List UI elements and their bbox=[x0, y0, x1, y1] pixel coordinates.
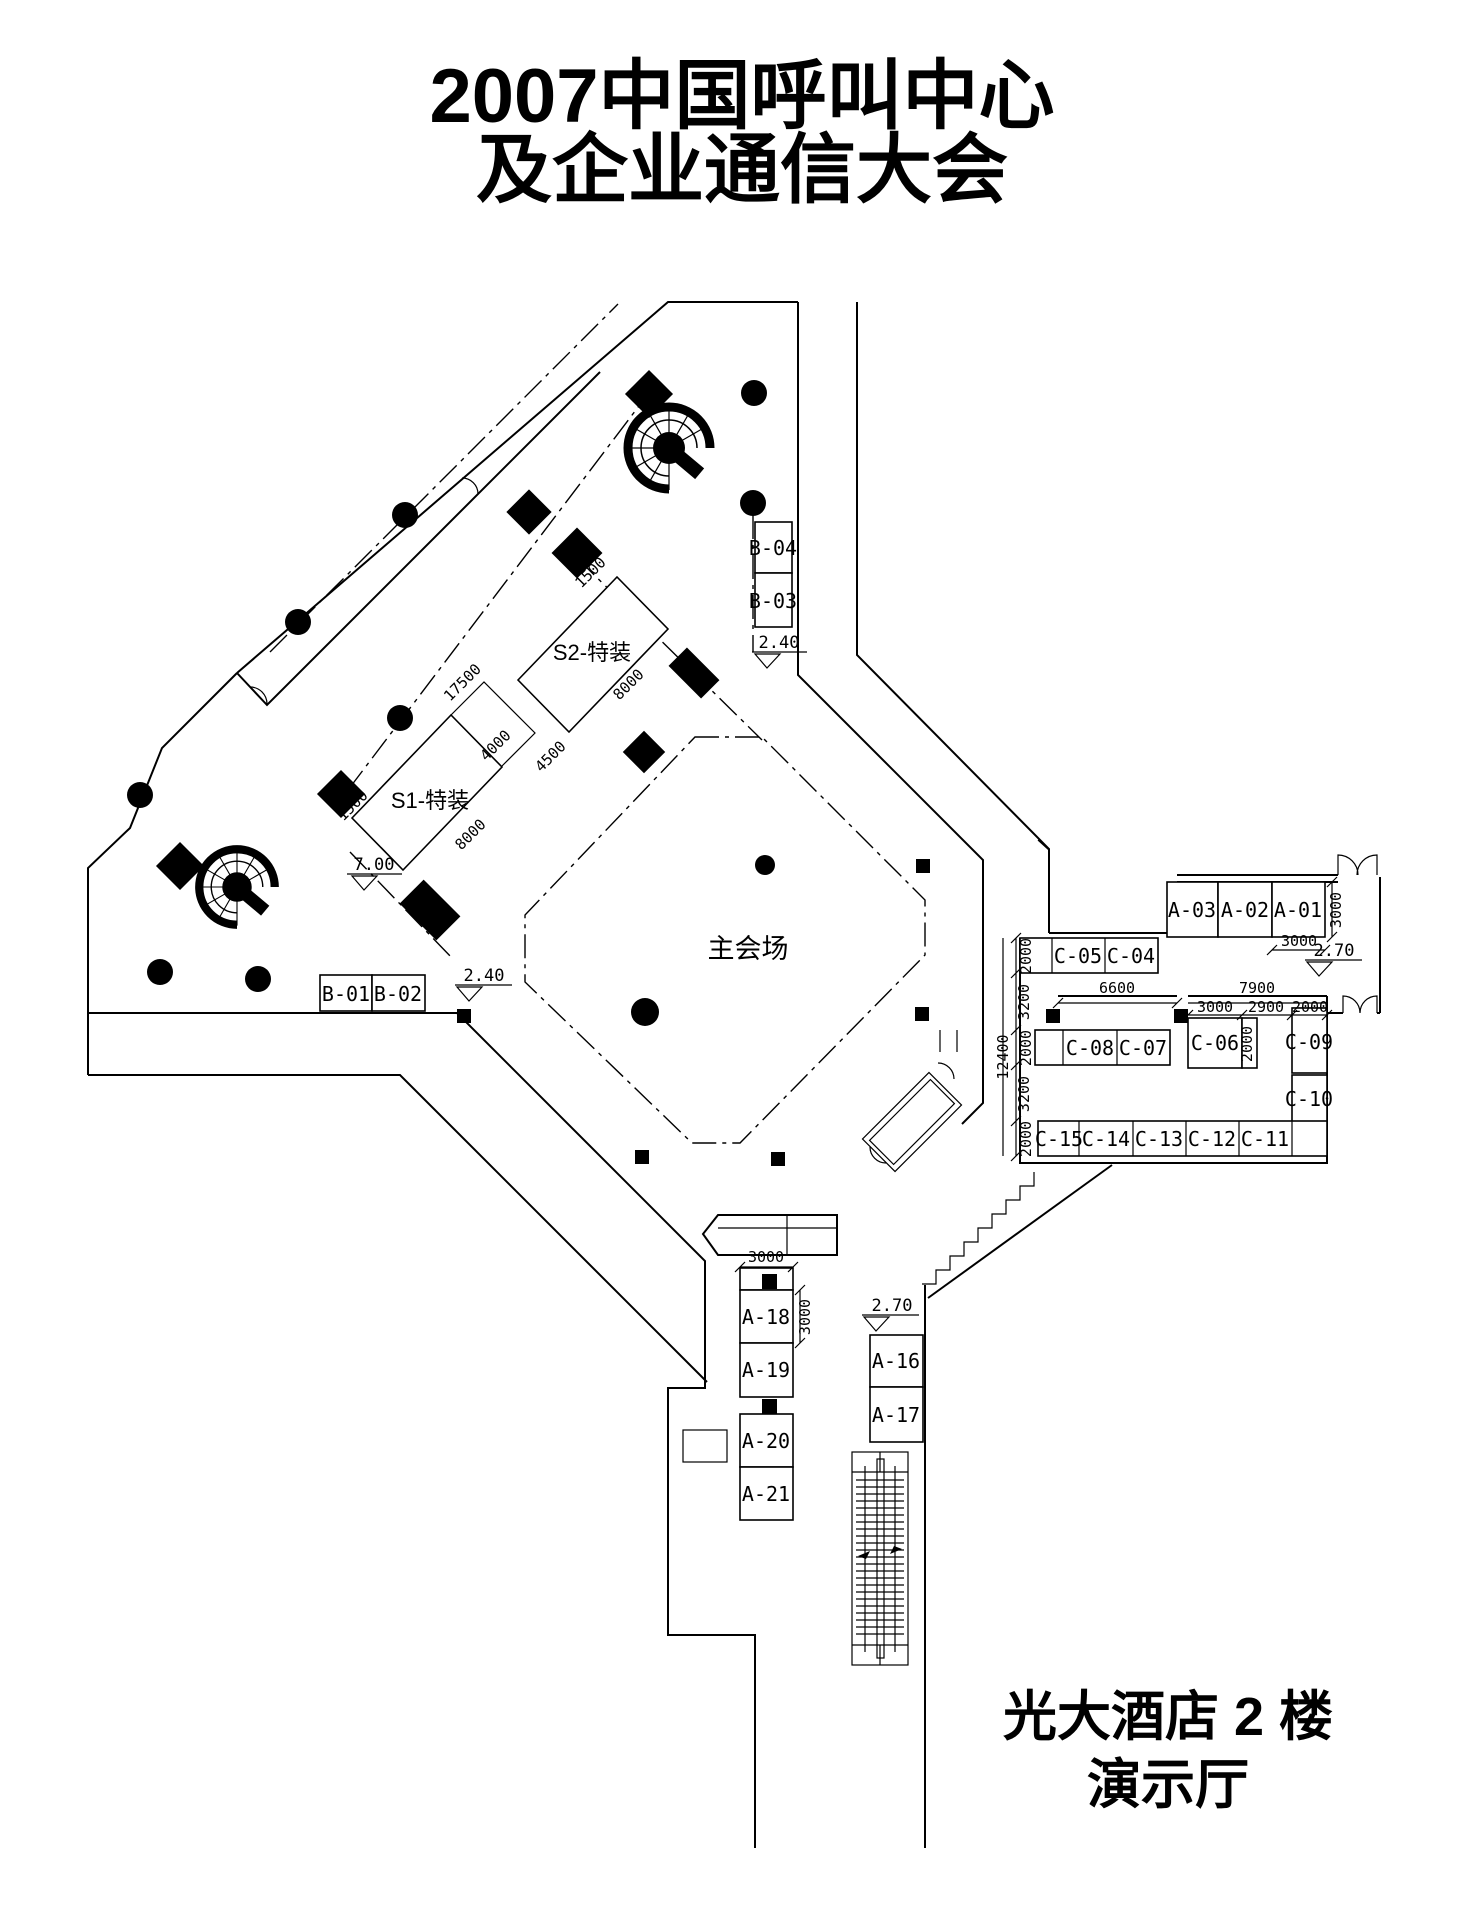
booth-a16-label: A-16 bbox=[872, 1349, 920, 1373]
booth-a18-label: A-18 bbox=[742, 1305, 790, 1329]
dim-a18-depth: 3000 bbox=[796, 1299, 814, 1335]
title-line1: 2007中国呼叫中心 bbox=[429, 54, 1054, 139]
booth-c13-label: C-13 bbox=[1135, 1127, 1183, 1151]
booth-a19-label: A-19 bbox=[742, 1358, 790, 1382]
column-square bbox=[915, 1007, 929, 1021]
column-square bbox=[1046, 1009, 1060, 1023]
dim-sub-2000: 2000 bbox=[1292, 998, 1328, 1016]
dim-c-2000b: 2000 bbox=[1017, 1030, 1035, 1066]
svg-text:2.70: 2.70 bbox=[872, 1296, 913, 1316]
svg-text:2.40: 2.40 bbox=[464, 966, 505, 986]
booth-c10-label: C-10 bbox=[1285, 1087, 1333, 1111]
footer-line2: 演示厅 bbox=[1087, 1755, 1249, 1815]
booth-c04-label: C-04 bbox=[1107, 944, 1155, 968]
footer-line1: 光大酒店 2 楼 bbox=[1003, 1687, 1333, 1747]
booth-b03-label: B-03 bbox=[749, 589, 797, 613]
booth-a21-label: A-21 bbox=[742, 1482, 790, 1506]
booth-a01-label: A-01 bbox=[1274, 898, 1322, 922]
dim-c-2000c: 2000 bbox=[1017, 1121, 1035, 1157]
booth-c06-label: C-06 bbox=[1191, 1031, 1239, 1055]
a-row-booths: A-03 A-02 A-01 bbox=[1167, 882, 1325, 937]
booth-a20-label: A-20 bbox=[742, 1429, 790, 1453]
booth-a17-label: A-17 bbox=[872, 1403, 920, 1427]
dim-c-3200b: 3200 bbox=[1015, 1076, 1033, 1112]
booth-b04-label: B-04 bbox=[749, 536, 797, 560]
dim-c-2000a: 2000 bbox=[1017, 938, 1035, 974]
dim-a-row-depth: 3000 bbox=[1327, 892, 1345, 928]
column-dot bbox=[755, 855, 775, 875]
booth-c12-label: C-12 bbox=[1188, 1127, 1236, 1151]
booth-c11-label: C-11 bbox=[1241, 1127, 1289, 1151]
booth-c09-label: C-09 bbox=[1285, 1030, 1333, 1054]
column-square bbox=[762, 1274, 777, 1289]
dim-a-row-width: 3000 bbox=[1281, 932, 1317, 950]
booth-c07-label: C-07 bbox=[1119, 1036, 1167, 1060]
column-dot bbox=[631, 998, 659, 1026]
column-square bbox=[771, 1152, 785, 1166]
dim-c06-2000: 2000 bbox=[1238, 1026, 1256, 1062]
booth-c15-label: C-15 bbox=[1035, 1127, 1083, 1151]
booth-c08-label: C-08 bbox=[1066, 1036, 1114, 1060]
column-square bbox=[916, 859, 930, 873]
svg-text:2.70: 2.70 bbox=[1314, 941, 1355, 961]
column-square bbox=[635, 1150, 649, 1164]
svg-text:2.40: 2.40 bbox=[759, 633, 800, 653]
title-line2: 及企业通信大会 bbox=[476, 128, 1008, 213]
booth-c05-label: C-05 bbox=[1054, 944, 1102, 968]
dim-sub-2900: 2900 bbox=[1248, 998, 1284, 1016]
booth-a03-label: A-03 bbox=[1168, 898, 1216, 922]
booth-b02-label: B-02 bbox=[374, 982, 422, 1006]
svg-text:7.00: 7.00 bbox=[354, 855, 395, 875]
booth-c14-label: C-14 bbox=[1082, 1127, 1130, 1151]
floor-plan: 2007中国呼叫中心 及企业通信大会 主会场 bbox=[0, 0, 1476, 1912]
booth-s2-label: S2-特装 bbox=[553, 640, 631, 665]
dim-7900: 7900 bbox=[1239, 979, 1275, 997]
booth-a02-label: A-02 bbox=[1221, 898, 1269, 922]
dim-6600: 6600 bbox=[1099, 979, 1135, 997]
page-title: 2007中国呼叫中心 及企业通信大会 bbox=[429, 54, 1054, 213]
dim-c-3200a: 3200 bbox=[1015, 984, 1033, 1020]
dim-sub-3000: 3000 bbox=[1197, 998, 1233, 1016]
dim-c-total: 12400 bbox=[994, 1034, 1012, 1079]
booth-s1-label: S1-特装 bbox=[391, 788, 469, 813]
column-square bbox=[762, 1399, 777, 1414]
booth-b01-label: B-01 bbox=[322, 982, 370, 1006]
dim-a18-width: 3000 bbox=[748, 1248, 784, 1266]
main-hall-label: 主会场 bbox=[708, 934, 789, 964]
column-square bbox=[1174, 1009, 1188, 1023]
